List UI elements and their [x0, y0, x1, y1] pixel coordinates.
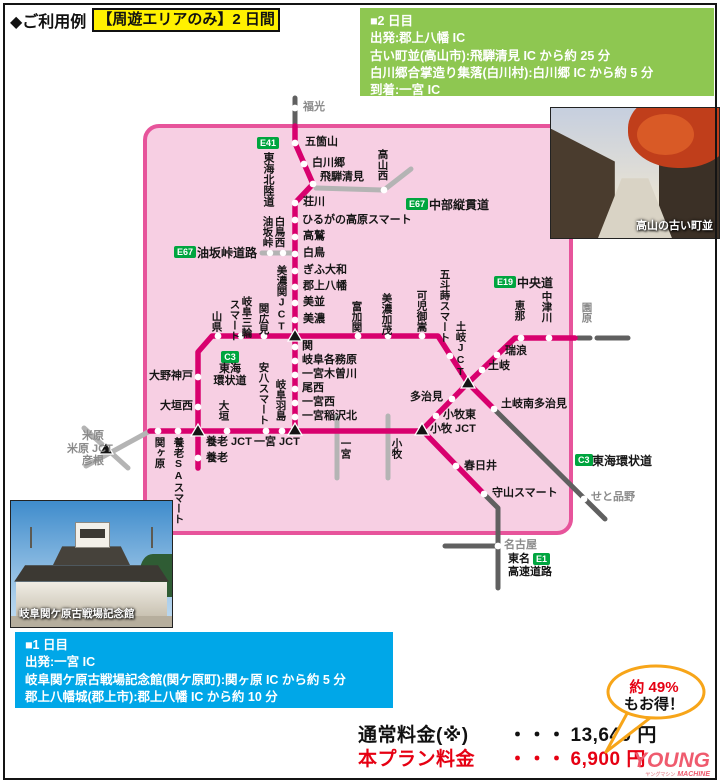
- station-label-gifukakamigahara: 岐阜各務原: [302, 355, 357, 366]
- station-label-maibara: 米原: [82, 431, 104, 442]
- station-label-shirotorinishi: 白鳥西: [274, 216, 285, 248]
- station-label-hikone: 彦根: [82, 456, 104, 467]
- road-label-chuo: 中央道: [517, 277, 553, 289]
- station-label-hidakiyomi: 飛騨清見: [320, 172, 364, 183]
- station-label-toki-jct: 土岐JCT: [455, 321, 466, 378]
- station-label-gotomaki: 五斗蒔スマート: [439, 269, 450, 343]
- station-label-yamagata: 山県: [211, 311, 222, 332]
- day2-itinerary-box: ■2 日目 出発:郡上八幡 IC 古い町並(高山市):飛騨清見 IC から約 2…: [360, 8, 714, 96]
- station-label-bisai: 尾西: [302, 383, 324, 394]
- c3-badge-east: C3: [575, 454, 593, 466]
- day1-line-sekigahara: 岐阜関ケ原古戦場記念館(関ケ原町):関ヶ原 IC から約 5 分: [25, 672, 383, 689]
- day2-line-departure: 出発:郡上八幡 IC: [370, 30, 704, 47]
- page-title: ◆ご利用例: [10, 8, 86, 32]
- normal-price-dots: ・・・: [508, 724, 567, 748]
- road-label-aburasaka: 油坂峠道路: [197, 247, 257, 259]
- header: ◆ご利用例 【周遊エリアのみ】2 日間: [10, 8, 280, 32]
- station-label-ichinomiya: 一宮: [340, 438, 351, 459]
- station-label-minokamo: 美濃加茂: [381, 293, 392, 335]
- station-label-yorosasmart: 養老SAスマート: [173, 437, 184, 524]
- discount-bubble: 約 49% もお得！: [598, 664, 710, 756]
- station-label-maibara-jct: 米原 JCT: [67, 444, 113, 455]
- day1-itinerary-box: ■1 日目 出発:一宮 IC 岐阜関ケ原古戦場記念館(関ケ原町):関ヶ原 IC …: [15, 632, 393, 708]
- station-label-ogakinishi: 大垣西: [160, 401, 193, 412]
- road-label-tokaihokuriku: 東海北陸道: [262, 152, 273, 207]
- c3-badge-west: C3: [221, 351, 239, 363]
- logo-young: YOUNG: [633, 750, 710, 771]
- e67-badge-chubu: E67: [406, 198, 428, 210]
- station-label-shirotori: 白鳥: [303, 248, 325, 259]
- station-label-nakatsugawa: 中津川: [541, 291, 552, 323]
- station-label-ichinomiya-jct: 一宮 JCT: [254, 437, 300, 448]
- plan-area-badge: 【周遊エリアのみ】2 日間: [92, 8, 280, 32]
- station-label-mino: 美濃: [303, 314, 325, 325]
- road-label-tokaikanjo-east: 東海環状道: [592, 455, 652, 467]
- day2-line-arrival: 到着:一宮 IC: [370, 82, 704, 99]
- station-label-smart: スマート: [229, 299, 240, 341]
- day1-line-gujo: 郡上八幡城(郡上市):郡上八幡 IC から約 10 分: [25, 689, 383, 706]
- station-label-moriyamasmart: 守山スマート: [492, 488, 558, 499]
- road-label-tokaikanjo-west: C3 東海 環状道: [204, 351, 256, 387]
- plan-price-label: 本プラン料金: [358, 748, 508, 772]
- station-label-shokawa: 荘川: [303, 197, 325, 208]
- station-label-ogaki: 大垣: [218, 400, 229, 421]
- station-label-ichinomiyainazawakita: 一宮稲沢北: [302, 411, 357, 422]
- station-label-komakihigashi: 小牧東: [443, 410, 476, 421]
- road-label-tomei-row1: 東名E1: [508, 553, 552, 566]
- station-label-tokiminamitajimi: 土岐南多治見: [501, 399, 567, 410]
- station-label-sonohara: 園原: [581, 302, 592, 323]
- station-label-ichinomiyakisogawa: 一宮木曽川: [302, 369, 357, 380]
- takayama-photo: 高山の古い町並: [550, 107, 720, 239]
- road-label-tomei1: 東名: [508, 553, 530, 565]
- e1-badge: E1: [533, 553, 550, 565]
- road-label-tomei: 東名E1 高速道路: [508, 553, 552, 578]
- young-machine-logo: YOUNG ヤングマシン MACHINE: [633, 750, 710, 778]
- day2-title: ■2 日目: [370, 13, 704, 30]
- station-label-ichinomiyanishi: 一宮西: [302, 397, 335, 408]
- photo-flagpole: [30, 527, 32, 547]
- station-label-shirakawago: 白川郷: [312, 158, 345, 169]
- normal-price-label: 通常料金(※): [358, 724, 508, 748]
- station-label-fukumitsu: 福光: [303, 102, 325, 113]
- photo-museum-upper: [53, 546, 130, 565]
- photo-museum-tower: [75, 522, 109, 548]
- station-label-takasu: 高鷲: [303, 231, 325, 242]
- station-label-toki: 土岐: [488, 361, 510, 372]
- station-label-gujohachiman: 郡上八幡: [303, 281, 347, 292]
- station-label-kasugai: 春日井: [464, 461, 497, 472]
- road-label-tokaikanjo-w2: 環状道: [204, 376, 256, 388]
- station-label-setoshinano: せと品野: [591, 492, 635, 503]
- station-label-minami: 美並: [303, 297, 325, 308]
- station-label-sekigahara: 関ヶ原: [154, 437, 165, 469]
- day2-line-shirakawago: 白川郷合掌造り集落(白川村):白川郷 IC から約 5 分: [370, 65, 704, 82]
- e41-badge: E41: [257, 137, 279, 149]
- plan-price-dots: ・・・: [508, 748, 567, 772]
- station-label-komaki: 小牧: [391, 438, 402, 459]
- takayama-photo-caption: 高山の古い町並: [636, 217, 713, 233]
- station-label-tomikaseki: 富加関: [351, 301, 362, 333]
- station-label-gifuhashima: 岐阜羽島: [275, 379, 286, 421]
- road-label-chubu: 中部縦貫道: [429, 199, 489, 211]
- station-label-tajimi: 多治見: [410, 392, 443, 403]
- photo-flagpole: [151, 527, 153, 547]
- station-label-yoro-jct: 養老 JCT: [206, 437, 252, 448]
- sekigahara-photo: 岐阜関ケ原古戦場記念館: [10, 500, 173, 628]
- station-label-gokayama: 五箇山: [305, 137, 338, 148]
- station-label-yoro: 養老: [206, 453, 228, 464]
- logo-kana: ヤングマシン: [645, 773, 675, 778]
- station-label-hirugano: ひるがの高原スマート: [302, 215, 412, 226]
- station-label-ena: 恵那: [514, 300, 525, 321]
- station-label-gifuyamato: ぎふ大和: [303, 265, 347, 276]
- logo-sub: ヤングマシン MACHINE: [633, 771, 710, 778]
- road-label-tomei2: 高速道路: [508, 566, 552, 579]
- station-label-sekihiromi: 関広見: [258, 303, 269, 335]
- station-label-nagoya: 名古屋: [504, 540, 537, 551]
- day2-line-takayama: 古い町並(高山市):飛騨清見 IC から約 25 分: [370, 48, 704, 65]
- e67-badge-aburasaka: E67: [174, 246, 196, 258]
- sekigahara-photo-caption: 岐阜関ケ原古戦場記念館: [19, 606, 135, 621]
- station-label-gifumiwa: 岐阜三輪: [241, 296, 252, 338]
- day1-line-departure: 出発:一宮 IC: [25, 654, 383, 671]
- road-label-tokaikanjo-w1: 東海: [204, 364, 256, 376]
- day1-title: ■1 日目: [25, 637, 383, 654]
- station-label-aburasakatoge: 油坂峠: [262, 216, 273, 248]
- station-label-seki: 関: [302, 341, 313, 352]
- flyer-page: ◆ご利用例 【周遊エリアのみ】2 日間 ■2 日目 出発:郡上八幡 IC 古い町…: [0, 0, 720, 783]
- station-label-komaki-jct: 小牧 JCT: [430, 424, 476, 435]
- station-label-onokodo: 大野神戸: [149, 371, 193, 382]
- station-label-anpachismart: 安八スマート: [258, 362, 269, 425]
- photo-museum-roof: [14, 565, 169, 581]
- station-label-takayamanishi: 高山西: [377, 149, 388, 181]
- station-label-mizunami: 瑞浪: [505, 346, 527, 357]
- station-label-minoseki-jct: 美濃関JCT: [276, 265, 287, 333]
- station-label-kanimitake: 可児御嵩: [416, 290, 427, 332]
- e19-badge: E19: [494, 276, 516, 288]
- discount-text: もお得！: [598, 693, 710, 714]
- logo-machine: MACHINE: [677, 771, 710, 778]
